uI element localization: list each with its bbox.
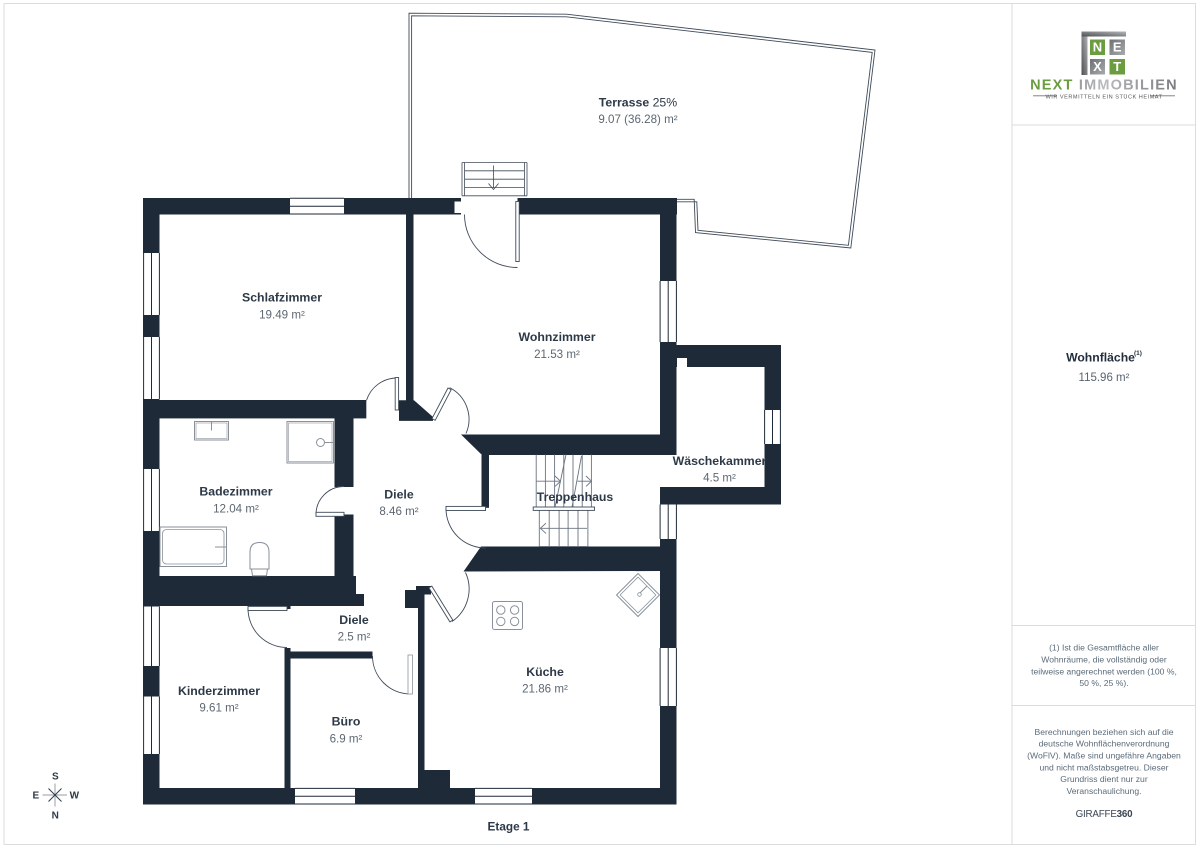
- svg-text:GIRAFFE360: GIRAFFE360: [1076, 809, 1134, 820]
- svg-text:Treppenhaus: Treppenhaus: [537, 490, 614, 504]
- svg-text:115.96 m²: 115.96 m²: [1079, 372, 1130, 384]
- svg-text:8.46 m²: 8.46 m²: [379, 505, 418, 518]
- svg-text:Kinderzimmer: Kinderzimmer: [178, 684, 260, 698]
- svg-text:6.9 m²: 6.9 m²: [330, 733, 363, 746]
- svg-text:WIR VERMITTELN EIN STÜCK HEIMA: WIR VERMITTELN EIN STÜCK HEIMAT: [1045, 93, 1162, 100]
- svg-text:Wohnzimmer: Wohnzimmer: [519, 330, 596, 344]
- svg-text:Badezimmer: Badezimmer: [199, 485, 272, 499]
- svg-text:Etage 1: Etage 1: [488, 820, 530, 834]
- svg-text:E: E: [32, 791, 39, 802]
- svg-text:W: W: [70, 791, 80, 802]
- svg-text:NEXT IMMOBILIEN: NEXT IMMOBILIEN: [1030, 78, 1178, 94]
- svg-text:S: S: [52, 772, 59, 783]
- svg-text:(1): (1): [1134, 350, 1142, 357]
- svg-text:2.5 m²: 2.5 m²: [338, 631, 371, 644]
- svg-text:Küche: Küche: [526, 665, 564, 679]
- svg-text:X: X: [1093, 59, 1102, 74]
- svg-text:19.49 m²: 19.49 m²: [259, 309, 305, 322]
- svg-text:4.5 m²: 4.5 m²: [703, 472, 736, 485]
- svg-text:Diele: Diele: [384, 488, 414, 502]
- svg-text:Büro: Büro: [332, 715, 361, 729]
- svg-text:und nicht maßstabsgetreu. Dies: und nicht maßstabsgetreu. Dieser: [1040, 762, 1169, 772]
- svg-text:50 %, 25 %).: 50 %, 25 %).: [1079, 678, 1128, 688]
- svg-text:Veranschaulichung.: Veranschaulichung.: [1066, 786, 1141, 796]
- svg-text:Wohnfläche: Wohnfläche: [1066, 351, 1135, 365]
- svg-text:Diele: Diele: [339, 613, 369, 627]
- svg-text:Terrasse 25%: Terrasse 25%: [599, 96, 677, 110]
- svg-text:teilweise angerechnet werden (: teilweise angerechnet werden (100 %,: [1031, 666, 1177, 676]
- svg-text:21.53 m²: 21.53 m²: [534, 348, 580, 361]
- svg-text:12.04 m²: 12.04 m²: [213, 503, 259, 516]
- svg-text:Berechnungen beziehen sich auf: Berechnungen beziehen sich auf die: [1034, 727, 1173, 737]
- svg-text:(1) Ist die Gesamtfläche aller: (1) Ist die Gesamtfläche aller: [1049, 643, 1159, 653]
- svg-text:E: E: [1113, 40, 1122, 55]
- svg-text:Schlafzimmer: Schlafzimmer: [242, 291, 322, 305]
- svg-text:21.86 m²: 21.86 m²: [522, 683, 568, 696]
- svg-text:Wäschekammer: Wäschekammer: [673, 454, 767, 468]
- svg-text:Grundriss dient nur zur: Grundriss dient nur zur: [1060, 774, 1148, 784]
- svg-text:Wohnräume, die vollständig ode: Wohnräume, die vollständig oder: [1041, 654, 1167, 664]
- svg-text:T: T: [1113, 59, 1121, 74]
- svg-text:9.61 m²: 9.61 m²: [199, 702, 238, 715]
- svg-text:N: N: [52, 811, 59, 822]
- svg-text:9.07 (36.28) m²: 9.07 (36.28) m²: [598, 113, 677, 126]
- svg-text:N: N: [1093, 40, 1102, 55]
- svg-text:(WoFlV). Maße sind ungefähre A: (WoFlV). Maße sind ungefähre Angaben: [1027, 751, 1181, 761]
- svg-text:deutsche Wohnflächenverordnung: deutsche Wohnflächenverordnung: [1039, 739, 1170, 749]
